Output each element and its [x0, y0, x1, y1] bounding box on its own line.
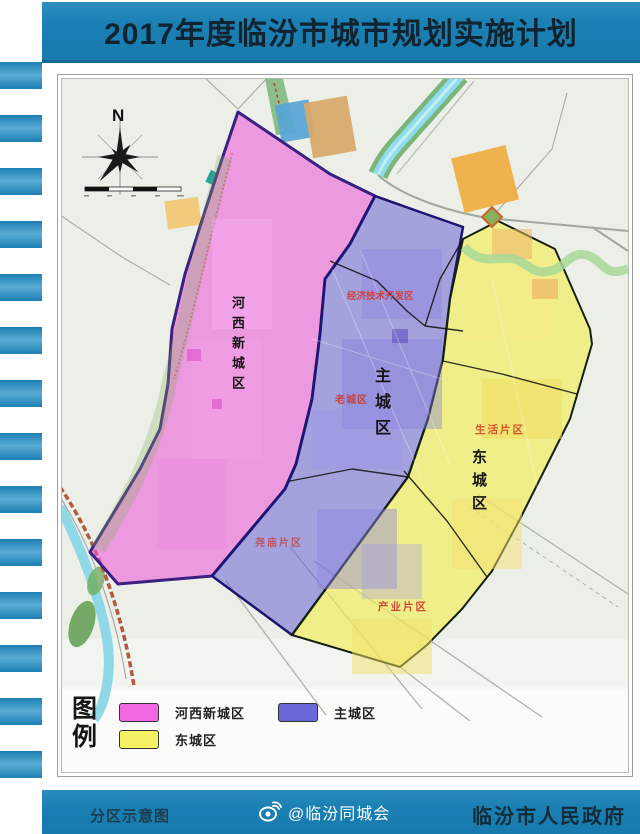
- map-legend: 图 例 河西新城区 主城区 东城区: [62, 694, 628, 772]
- subzone-label-jingjikaifa: 经济技术开发区: [347, 292, 414, 302]
- legend-label-east: 东城区: [175, 730, 217, 749]
- legend-item-east: 东城区: [119, 730, 217, 749]
- north-label: N: [112, 107, 124, 124]
- city-map-svg: [62, 79, 628, 772]
- zone-label-hexi: 河西新城区: [231, 296, 244, 396]
- zone-label-zhucheng: 主城区: [372, 367, 388, 445]
- subzone-label-yaomiao: 尧庙片区: [255, 539, 303, 549]
- legend-title: 图 例: [72, 695, 97, 751]
- legend-label-hexi: 河西新城区: [175, 703, 245, 722]
- left-stripe-border: [0, 62, 42, 790]
- title-banner: 2017年度临汾市城市规划实施计划: [42, 2, 640, 63]
- subzone-label-chanye: 产业片区: [378, 602, 428, 613]
- page-title: 2017年度临汾市城市规划实施计划: [104, 9, 578, 53]
- legend-item-main: 主城区: [278, 703, 376, 722]
- legend-swatch-main: [278, 703, 318, 722]
- poster-page: 2017年度临汾市城市规划实施计划: [0, 0, 640, 834]
- watermark-text: @临汾同城会: [288, 800, 390, 824]
- weibo-icon: [258, 800, 282, 824]
- map-canvas: N 河西新城区 主城区 东城区 经济技术开发区 老城区 尧庙片区 生活片区 产业…: [61, 78, 629, 773]
- legend-swatch-hexi: [119, 703, 159, 722]
- legend-label-main: 主城区: [334, 703, 376, 722]
- legend-item-hexi: 河西新城区: [119, 703, 245, 722]
- yellow-block: [164, 197, 202, 229]
- government-label: 临汾市人民政府: [472, 800, 626, 829]
- map-frame: N 河西新城区 主城区 东城区 经济技术开发区 老城区 尧庙片区 生活片区 产业…: [57, 74, 633, 777]
- legend-swatch-east: [119, 730, 159, 749]
- subzone-label-shenghuo: 生活片区: [475, 425, 525, 436]
- subzone-label-laocheng: 老城区: [335, 396, 368, 406]
- footer-bar: 分区示意图 @临汾同城会 临汾市人民政府: [42, 790, 640, 834]
- zone-label-dongcheng: 东城区: [471, 449, 486, 518]
- footer-caption: 分区示意图: [90, 805, 170, 826]
- watermark: @临汾同城会: [258, 800, 390, 824]
